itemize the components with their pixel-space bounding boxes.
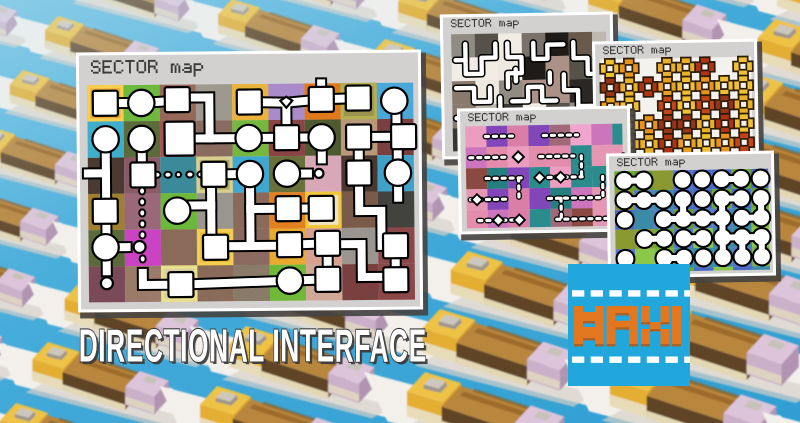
- svg-text:DIRECTIONAL INTERFACE: DIRECTIONAL INTERFACE: [79, 320, 427, 372]
